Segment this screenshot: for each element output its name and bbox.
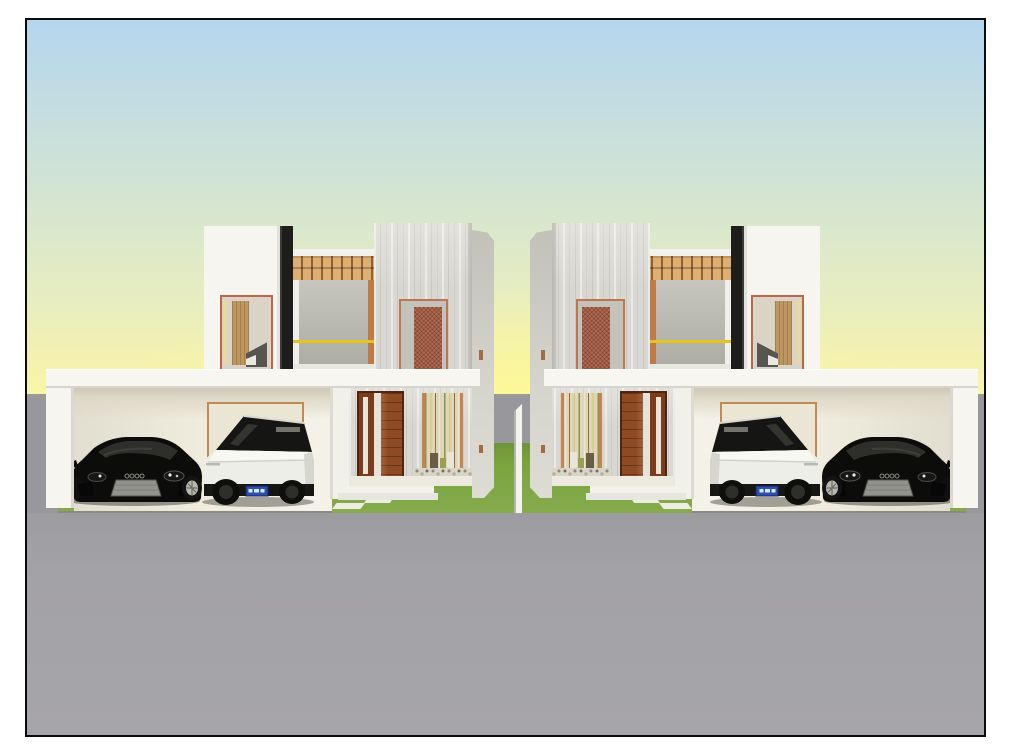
lawn-paver-3 — [332, 503, 365, 509]
black-column — [280, 226, 293, 369]
lawn-paver-3 — [659, 503, 692, 509]
balcony-opening — [650, 280, 731, 364]
window-sidelight-glow — [797, 301, 801, 363]
bedroom-tower — [744, 226, 820, 369]
pergola-slats — [650, 256, 731, 280]
sliver-trim-mark-2 — [541, 445, 545, 453]
balcony-jamb-left — [725, 280, 731, 364]
facade-plinth — [349, 476, 472, 486]
bamboo-niche — [561, 393, 602, 470]
black-sports-car — [816, 422, 960, 506]
front-door-frame — [620, 391, 667, 480]
carport-roof-slab — [46, 369, 480, 388]
door-sidelight — [650, 393, 665, 478]
door-frosted-strip — [374, 393, 381, 478]
entry-step-lower — [586, 493, 686, 500]
porch-return-wall — [675, 385, 694, 499]
side-wall-sliver — [530, 230, 552, 498]
render-viewport — [25, 18, 986, 737]
carport-floor-edge — [58, 511, 332, 513]
sliver-trim-mark-2 — [479, 445, 483, 453]
concrete-tower — [374, 223, 472, 369]
entry-step-upper — [590, 486, 679, 493]
niche-plant-pot — [578, 458, 584, 468]
render-page — [0, 0, 1020, 744]
sidelight-glass — [656, 397, 661, 474]
front-door-frame — [357, 391, 404, 480]
pergola-beam — [293, 249, 374, 256]
yellow-railing — [293, 340, 374, 343]
balcony-block — [293, 249, 374, 369]
balcony-jamb-left — [293, 280, 299, 364]
bedroom-window — [220, 295, 273, 373]
mesh-screen-door — [414, 307, 442, 371]
sliver-trim-mark-1 — [541, 350, 545, 360]
niche-white-pot — [447, 452, 454, 468]
mesh-screen-door — [582, 307, 610, 371]
ground-floor-facade — [349, 385, 472, 476]
front-door-leaf — [622, 393, 643, 478]
carport-side-wall — [46, 385, 74, 508]
bedroom-tower — [204, 226, 280, 369]
niche-box-dark — [430, 453, 438, 468]
balcony-opening — [293, 280, 374, 364]
porch-return-wall — [330, 385, 349, 499]
door-sidelight — [359, 393, 374, 478]
black-column — [731, 226, 744, 369]
mesh-door-recess — [576, 299, 625, 373]
ground-floor-facade — [552, 385, 675, 476]
mesh-door-recess — [399, 299, 448, 373]
bamboo-niche — [422, 393, 463, 470]
pergola-beam — [650, 249, 731, 256]
white-angular-truck — [706, 410, 824, 508]
door-frosted-strip — [643, 393, 650, 478]
facade-plinth — [552, 476, 675, 486]
sliver-trim-mark-1 — [479, 350, 483, 360]
balcony-jamb-right — [650, 280, 656, 364]
carport-roof-slab — [544, 369, 978, 388]
window-sidelight-glow — [223, 301, 227, 363]
entry-step-lower — [338, 493, 438, 500]
yellow-railing — [650, 340, 731, 343]
white-angular-truck — [200, 410, 318, 508]
front-door-leaf — [381, 393, 402, 478]
niche-white-pot — [570, 452, 577, 468]
balcony-block — [650, 249, 731, 369]
side-wall-sliver — [472, 230, 494, 498]
niche-plant-pot — [440, 458, 446, 468]
niche-box-dark — [586, 453, 594, 468]
black-sports-car — [64, 422, 208, 506]
sidelight-glass — [363, 397, 368, 474]
carport-floor-edge — [692, 511, 966, 513]
carport-side-wall — [950, 385, 978, 508]
pergola-slats — [293, 256, 374, 280]
concrete-tower — [552, 223, 650, 369]
houses-group — [27, 20, 984, 735]
dividing-fence — [514, 404, 522, 513]
entry-step-upper — [345, 486, 434, 493]
bedroom-window — [751, 295, 804, 373]
